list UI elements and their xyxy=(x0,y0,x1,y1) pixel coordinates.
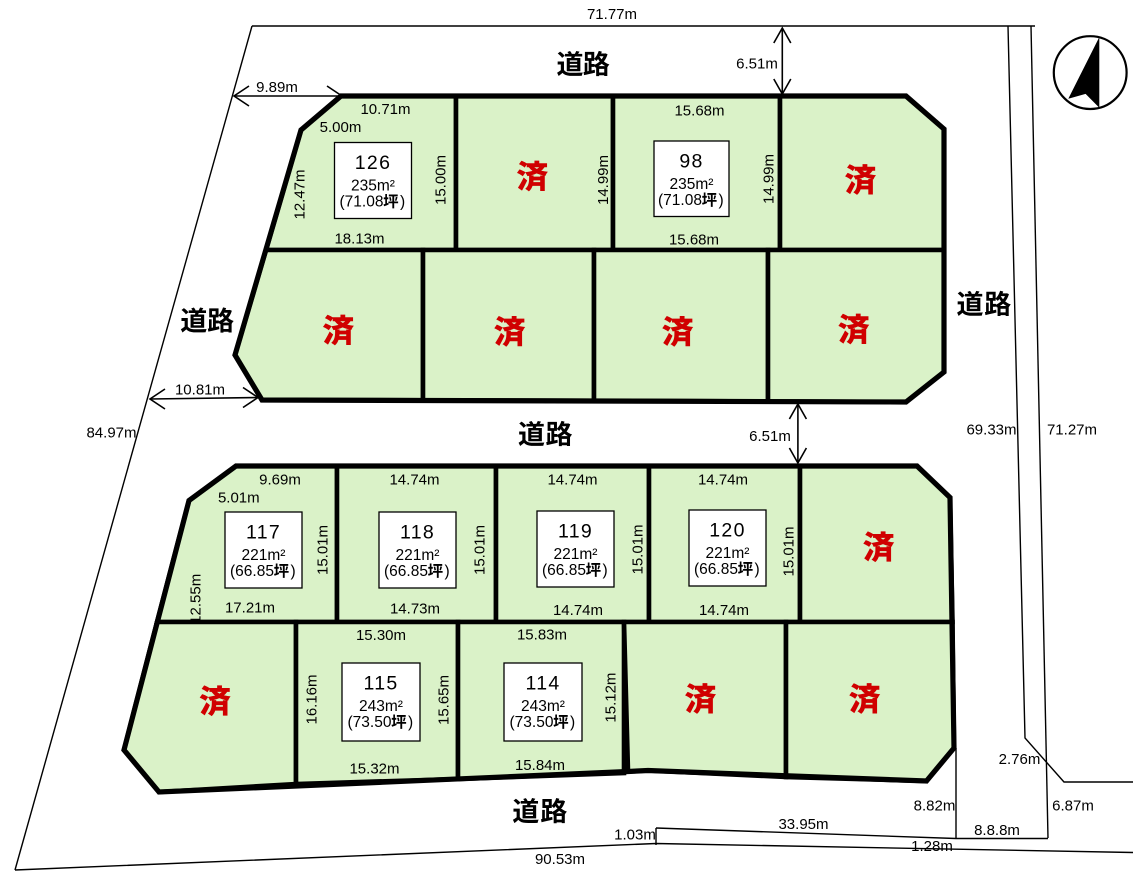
svg-text:15.30m: 15.30m xyxy=(356,627,406,644)
svg-text:9.69m: 9.69m xyxy=(259,472,301,489)
svg-text:10.81m: 10.81m xyxy=(175,382,225,399)
svg-text:33.95m: 33.95m xyxy=(778,816,828,833)
svg-text:120: 120 xyxy=(709,520,745,542)
svg-text:221m²: 221m² xyxy=(242,547,286,564)
svg-text:15.01m: 15.01m xyxy=(781,526,798,576)
svg-text:1.03m: 1.03m xyxy=(614,827,656,844)
svg-text:126: 126 xyxy=(355,152,391,174)
svg-text:14.73m: 14.73m xyxy=(390,601,440,618)
svg-text:221m²: 221m² xyxy=(706,545,750,562)
svg-text:): ) xyxy=(755,561,760,578)
svg-text:118: 118 xyxy=(400,522,435,544)
svg-text:15.84m: 15.84m xyxy=(515,757,565,774)
svg-text:(73.50: (73.50 xyxy=(348,714,392,731)
svg-text:16.16m: 16.16m xyxy=(304,674,321,724)
svg-text:6.87m: 6.87m xyxy=(1052,798,1094,815)
svg-text:15.65m: 15.65m xyxy=(436,675,453,725)
svg-text:(71.08: (71.08 xyxy=(658,192,702,209)
svg-text:15.68m: 15.68m xyxy=(674,103,724,120)
svg-text:235m²: 235m² xyxy=(670,176,714,193)
svg-text:(66.85: (66.85 xyxy=(384,563,428,580)
svg-text:): ) xyxy=(570,714,575,731)
svg-text:2.76m: 2.76m xyxy=(999,751,1041,768)
svg-text:(73.50: (73.50 xyxy=(510,714,554,731)
svg-text:119: 119 xyxy=(558,521,593,543)
svg-text:6.51m: 6.51m xyxy=(749,428,791,445)
svg-text:): ) xyxy=(400,193,405,210)
svg-text:14.99m: 14.99m xyxy=(595,155,612,205)
svg-text:): ) xyxy=(291,563,296,580)
svg-text:71.77m: 71.77m xyxy=(587,6,637,23)
svg-text:(66.85: (66.85 xyxy=(542,562,586,579)
svg-text:10.71m: 10.71m xyxy=(360,101,410,118)
svg-text:14.74m: 14.74m xyxy=(389,472,439,489)
svg-text:9.89m: 9.89m xyxy=(256,79,298,96)
svg-text:5.00m: 5.00m xyxy=(320,119,362,136)
svg-text:71.27m: 71.27m xyxy=(1047,422,1097,439)
svg-text:6.51m: 6.51m xyxy=(736,56,778,73)
svg-text:): ) xyxy=(603,562,608,579)
svg-text:(66.85: (66.85 xyxy=(230,563,274,580)
svg-text:115: 115 xyxy=(364,673,399,695)
svg-text:12.47m: 12.47m xyxy=(292,169,309,219)
svg-text:14.74m: 14.74m xyxy=(699,602,749,619)
svg-text:): ) xyxy=(408,714,413,731)
svg-text:235m²: 235m² xyxy=(351,178,395,195)
svg-text:15.01m: 15.01m xyxy=(315,525,332,575)
svg-text:15.01m: 15.01m xyxy=(472,525,489,575)
svg-text:): ) xyxy=(719,192,724,209)
svg-text:5.01m: 5.01m xyxy=(218,489,260,506)
svg-text:15.12m: 15.12m xyxy=(603,673,620,723)
svg-text:14.74m: 14.74m xyxy=(698,472,748,489)
svg-text:8.82m: 8.82m xyxy=(914,798,956,815)
svg-text:15.32m: 15.32m xyxy=(349,761,399,778)
svg-text:(66.85: (66.85 xyxy=(694,561,738,578)
svg-text:69.33m: 69.33m xyxy=(966,422,1016,439)
svg-text:18.13m: 18.13m xyxy=(334,231,384,248)
svg-text:1.28m: 1.28m xyxy=(911,838,953,855)
svg-text:15.83m: 15.83m xyxy=(517,627,567,644)
svg-text:15.01m: 15.01m xyxy=(630,524,647,574)
svg-text:): ) xyxy=(445,563,450,580)
svg-text:15.68m: 15.68m xyxy=(669,232,719,249)
svg-text:84.97m: 84.97m xyxy=(86,425,136,442)
svg-text:14.74m: 14.74m xyxy=(553,602,603,619)
svg-text:15.00m: 15.00m xyxy=(433,155,450,205)
svg-text:8.8.8m: 8.8.8m xyxy=(974,822,1020,839)
svg-text:243m²: 243m² xyxy=(359,698,403,715)
svg-text:243m²: 243m² xyxy=(521,698,565,715)
svg-text:14.74m: 14.74m xyxy=(547,472,597,489)
svg-text:17.21m: 17.21m xyxy=(225,600,275,617)
svg-text:114: 114 xyxy=(526,673,561,695)
svg-text:117: 117 xyxy=(246,522,281,544)
svg-text:90.53m: 90.53m xyxy=(535,851,585,868)
svg-text:12.55m: 12.55m xyxy=(188,574,205,624)
svg-text:221m²: 221m² xyxy=(396,547,440,564)
svg-text:14.99m: 14.99m xyxy=(761,154,778,204)
svg-text:221m²: 221m² xyxy=(554,546,598,563)
svg-text:(71.08: (71.08 xyxy=(340,193,384,210)
svg-text:98: 98 xyxy=(679,151,703,173)
